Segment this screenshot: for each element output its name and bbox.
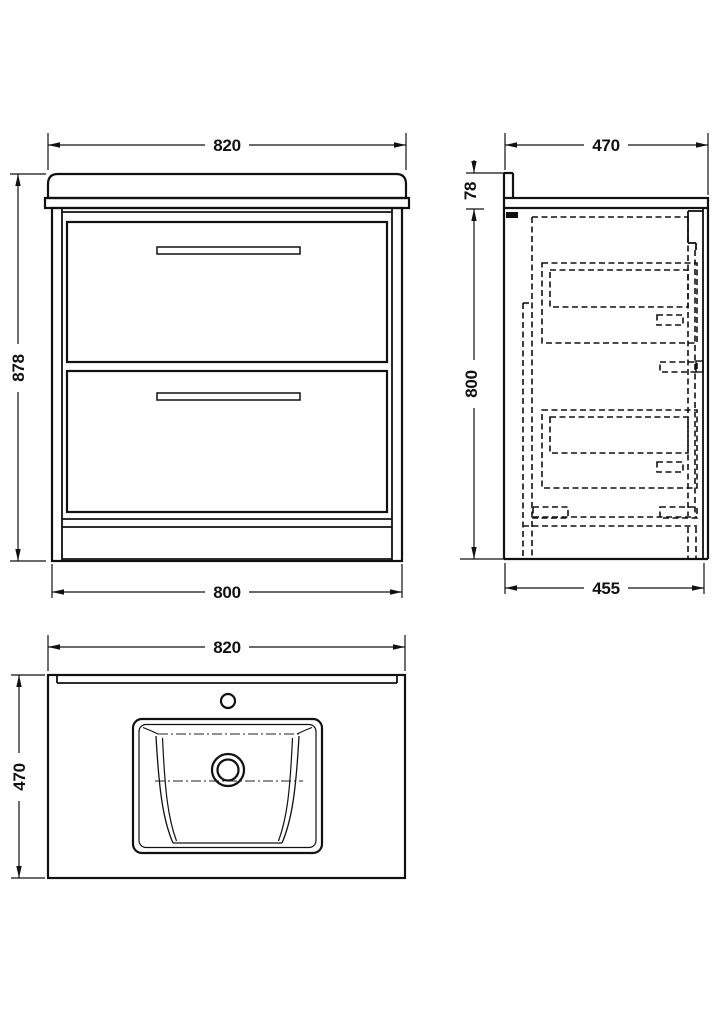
- side-depth-top-label: 470: [592, 136, 619, 155]
- side-dim-depth-bottom: 455: [505, 563, 704, 598]
- front-countertop: [45, 174, 409, 208]
- basin-waste-drain: [212, 754, 244, 786]
- drawer-2-handle: [157, 393, 300, 400]
- side-countertop: [504, 173, 708, 218]
- front-drawer-2: [67, 371, 387, 512]
- front-drawer-1: [67, 222, 387, 362]
- vanity-unit-drawing: 820 878 800: [0, 0, 724, 1024]
- plan-depth-label: 470: [10, 763, 29, 790]
- front-height-label: 878: [9, 354, 28, 381]
- side-drawer-2-hidden: [542, 410, 697, 488]
- side-depth-bottom-label: 455: [592, 579, 619, 598]
- front-width-top-label: 820: [213, 136, 240, 155]
- plan-dim-width: 820: [48, 635, 405, 671]
- fixing-bracket: [506, 212, 518, 218]
- side-dim-upstand-and-height: 78 800: [460, 160, 504, 559]
- front-view: 820 878 800: [8, 133, 409, 602]
- side-drawer-1-hidden: [542, 263, 697, 343]
- plan-width-label: 820: [213, 638, 240, 657]
- front-cabinet: [52, 208, 402, 561]
- side-cabinet-hidden-detail: [523, 217, 697, 558]
- front-width-bottom-label: 800: [213, 583, 240, 602]
- front-dim-width-top: 820: [48, 133, 406, 170]
- side-height-label: 800: [462, 370, 481, 397]
- plan-basin: [133, 719, 322, 853]
- plan-view: 820 470: [9, 635, 405, 878]
- side-upstand-height-label: 78: [461, 182, 480, 200]
- side-view: 470 78 800 455: [460, 133, 708, 598]
- drawer-1-handle: [157, 247, 300, 254]
- technical-drawing-sheet: 820 878 800: [0, 0, 724, 1024]
- side-dim-depth-top: 470: [505, 133, 708, 195]
- tap-hole: [221, 694, 235, 708]
- plan-dim-depth: 470: [9, 675, 45, 878]
- front-dim-width-bottom: 800: [52, 564, 402, 602]
- front-dim-height: 878: [8, 174, 46, 561]
